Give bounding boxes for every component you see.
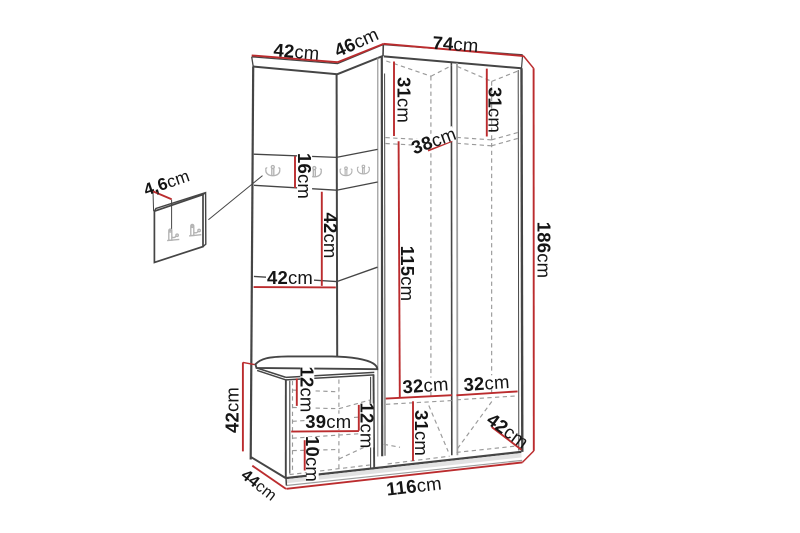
svg-text:12cm: 12cm: [297, 366, 318, 412]
svg-text:42cm: 42cm: [483, 409, 533, 453]
svg-text:42cm: 42cm: [273, 39, 321, 64]
svg-text:44cm: 44cm: [238, 467, 280, 505]
svg-text:42cm: 42cm: [221, 387, 242, 433]
svg-text:31cm: 31cm: [411, 410, 432, 456]
svg-text:39cm: 39cm: [305, 411, 351, 432]
svg-text:10cm: 10cm: [302, 436, 323, 482]
svg-text:32cm: 32cm: [463, 371, 510, 395]
svg-text:12cm: 12cm: [357, 402, 378, 448]
svg-text:32cm: 32cm: [402, 373, 449, 397]
svg-text:42cm: 42cm: [267, 267, 313, 288]
svg-text:74cm: 74cm: [432, 32, 479, 56]
svg-text:31cm: 31cm: [394, 77, 415, 123]
svg-text:42cm: 42cm: [320, 212, 341, 258]
svg-text:4,6cm: 4,6cm: [141, 166, 192, 199]
svg-text:16cm: 16cm: [294, 153, 315, 199]
svg-text:115cm: 115cm: [397, 246, 418, 302]
svg-text:31cm: 31cm: [485, 87, 506, 133]
svg-text:186cm: 186cm: [534, 222, 555, 279]
